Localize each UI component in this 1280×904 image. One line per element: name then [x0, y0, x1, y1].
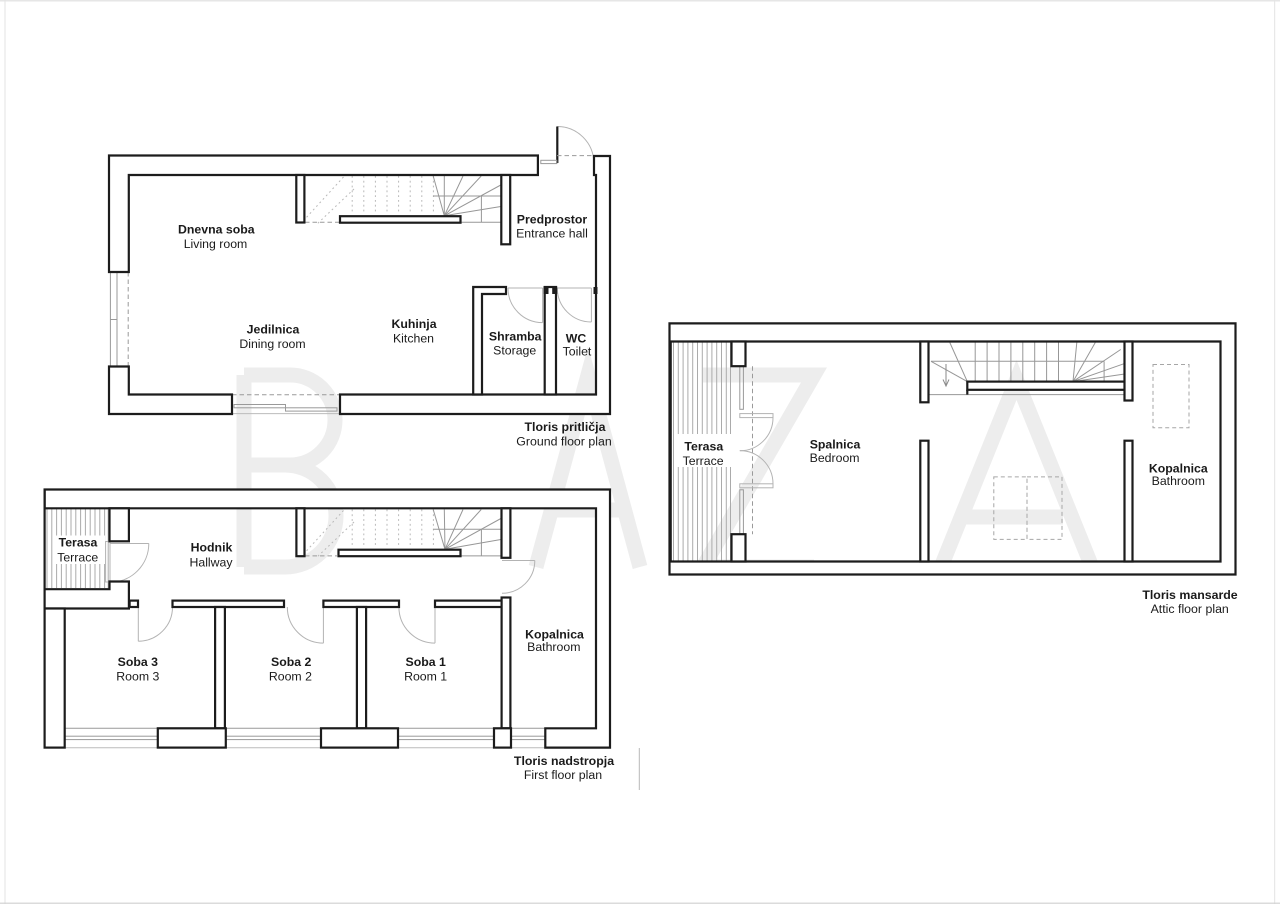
svg-text:Attic floor plan: Attic floor plan — [1151, 602, 1229, 616]
svg-text:Jedilnica: Jedilnica — [247, 322, 300, 336]
svg-text:Terasa: Terasa — [684, 439, 723, 453]
svg-text:Soba 3: Soba 3 — [118, 655, 158, 669]
svg-text:Tloris pritličja: Tloris pritličja — [525, 420, 606, 434]
svg-text:Kitchen: Kitchen — [393, 331, 434, 345]
svg-text:First floor plan: First floor plan — [524, 768, 602, 782]
svg-text:Dnevna soba: Dnevna soba — [178, 223, 255, 237]
svg-text:Terasa: Terasa — [59, 535, 98, 549]
svg-text:Bathroom: Bathroom — [1152, 474, 1205, 488]
svg-text:Hallway: Hallway — [189, 556, 233, 570]
svg-text:Ground floor plan: Ground floor plan — [516, 434, 612, 448]
svg-text:Tloris mansarde: Tloris mansarde — [1142, 588, 1237, 602]
svg-text:Kopalnica: Kopalnica — [1149, 461, 1208, 475]
svg-text:Terrace: Terrace — [683, 454, 724, 468]
svg-text:Hodnik: Hodnik — [191, 541, 233, 555]
svg-text:Living room: Living room — [184, 237, 248, 251]
svg-text:Bathroom: Bathroom — [527, 640, 580, 654]
svg-text:Terrace: Terrace — [57, 551, 98, 565]
svg-text:WC: WC — [566, 332, 587, 346]
svg-text:Room 2: Room 2 — [269, 669, 312, 683]
svg-text:Spalnica: Spalnica — [810, 438, 861, 452]
svg-text:Toilet: Toilet — [563, 345, 592, 359]
svg-text:Bedroom: Bedroom — [810, 451, 860, 465]
svg-text:Soba 1: Soba 1 — [406, 655, 446, 669]
svg-text:Storage: Storage — [493, 344, 536, 358]
svg-text:Kuhinja: Kuhinja — [391, 317, 436, 331]
svg-text:Shramba: Shramba — [489, 330, 542, 344]
svg-text:Room 1: Room 1 — [404, 669, 447, 683]
svg-text:Soba 2: Soba 2 — [271, 655, 311, 669]
svg-text:Tloris nadstropja: Tloris nadstropja — [514, 754, 614, 768]
svg-text:Dining room: Dining room — [239, 337, 305, 351]
svg-text:Room 3: Room 3 — [116, 669, 159, 683]
svg-text:Predprostor: Predprostor — [517, 213, 588, 227]
svg-text:Entrance hall: Entrance hall — [516, 227, 588, 241]
